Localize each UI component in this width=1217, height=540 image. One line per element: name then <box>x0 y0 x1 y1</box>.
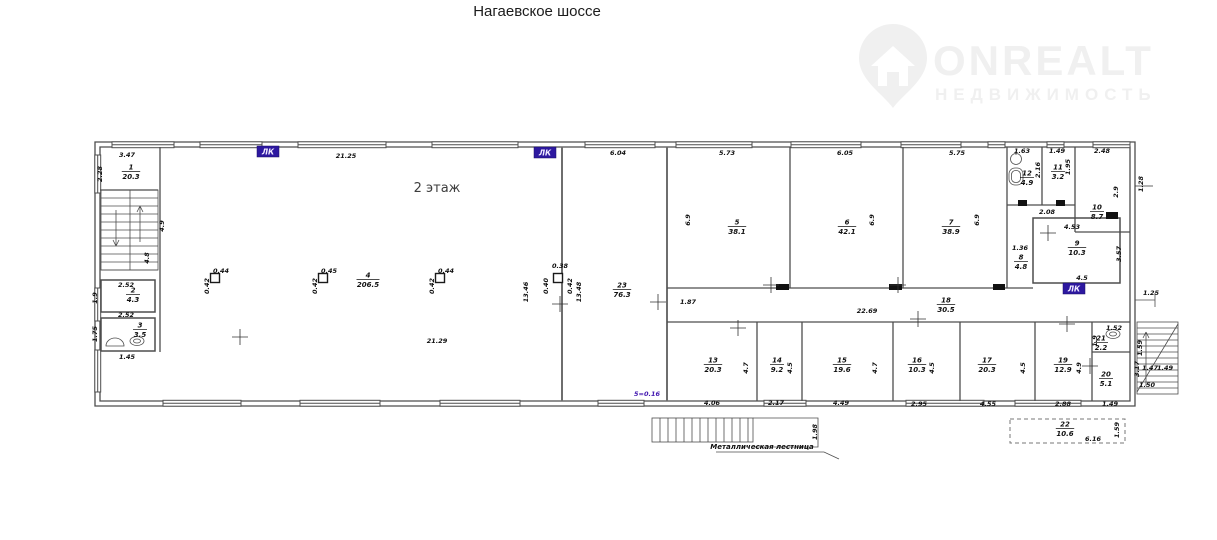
room-area: 4.9 <box>1021 179 1034 187</box>
room-label-15: 1519.6 <box>833 357 851 375</box>
room-number: 17 <box>982 357 992 365</box>
level-note: 5=0.16 <box>634 390 660 398</box>
room-label-7: 738.9 <box>942 219 960 237</box>
cross-ticks <box>232 186 1153 374</box>
room-label-22: 2210.6 <box>1056 421 1074 439</box>
room-label-6: 642.1 <box>838 219 856 237</box>
room-label-10: 108.7 <box>1090 204 1104 222</box>
dimension-label: 6.16 <box>1085 435 1102 443</box>
room-number: 11 <box>1053 164 1063 172</box>
room-area: 9.2 <box>771 366 784 374</box>
dimension-label: 1.45 <box>119 353 136 361</box>
dimension-label: 1.59 <box>1113 422 1121 439</box>
room-area: 4.3 <box>127 296 140 304</box>
dimension-label: 1.63 <box>1014 147 1031 155</box>
dimension-label: 21.29 <box>427 337 448 345</box>
dimension-label: 2.28 <box>96 166 104 183</box>
room-area: 20.3 <box>978 366 995 374</box>
room-label-17: 1720.3 <box>978 357 996 375</box>
toilet-icon <box>1110 332 1117 336</box>
fixtures <box>106 151 1120 346</box>
room-label-11: 113.2 <box>1051 164 1065 182</box>
dimension-label: 2.17 <box>768 399 785 407</box>
dimension-label: 1.28 <box>1137 176 1145 193</box>
dimension-label: 1.9 <box>91 292 99 304</box>
dimension-label: 2.52 <box>118 281 135 289</box>
dimension-label: 4.9 <box>158 220 166 232</box>
room-number: 1 <box>129 164 134 172</box>
room-label-5: 538.1 <box>728 219 746 237</box>
room-area: 10.3 <box>1068 249 1085 257</box>
dimension-label: 2.88 <box>1055 400 1072 408</box>
dimension-label: 4.9 <box>1075 362 1083 374</box>
dimension-label: 4.06 <box>704 399 721 407</box>
dimension-label: 0.44 <box>213 267 230 275</box>
room-number: 9 <box>1075 240 1080 248</box>
room-label-2: 24.3 <box>126 287 140 305</box>
room-label-16: 1610.3 <box>908 357 926 375</box>
floor-label: 2 этаж <box>414 181 461 196</box>
columns <box>211 274 563 283</box>
dimension-label: 3.17 <box>1133 361 1141 378</box>
lk-marker: ЛК <box>257 146 279 157</box>
dimension-label: 4.5 <box>1076 274 1088 282</box>
room-number: 6 <box>845 219 850 227</box>
dimension-label: 3.57 <box>1115 246 1123 263</box>
room-area: 38.9 <box>942 228 959 236</box>
dimension-label: 0.42 <box>311 278 319 295</box>
dimension-label: 1.95 <box>1064 159 1072 176</box>
dimension-label: 6.9 <box>868 214 876 226</box>
room-label-9: 910.3 <box>1068 240 1086 258</box>
dimension-label: 4.5 <box>1019 362 1027 374</box>
dimension-label: 2.16 <box>1034 162 1042 179</box>
room-area: 30.5 <box>937 306 954 314</box>
sink-icon <box>106 338 124 346</box>
room-label-14: 149.2 <box>770 357 784 375</box>
stair-up-arrow <box>137 206 143 242</box>
dimension-label: 5.73 <box>719 149 736 157</box>
room-area: 8.7 <box>1091 213 1104 221</box>
dimension-label: 1.49 <box>1157 364 1174 372</box>
room-label-1: 120.3 <box>122 164 140 182</box>
dimension-label: 0.44 <box>438 267 455 275</box>
room-area: 10.6 <box>1056 430 1073 438</box>
sink-icon <box>1011 154 1022 165</box>
room-area: 76.3 <box>613 291 630 299</box>
dimension-label: 1.98 <box>811 424 819 441</box>
stair-down-arrow <box>113 210 119 246</box>
room-number: 15 <box>837 357 847 365</box>
lk-marker-label: ЛК <box>1067 285 1081 294</box>
dimension-label: 4.8 <box>143 252 151 264</box>
lk-marker: ЛК <box>1063 283 1085 294</box>
room-label-8: 84.8 <box>1014 254 1028 272</box>
room-area: 4.8 <box>1015 263 1028 271</box>
dimension-label: 4.5 <box>786 362 794 374</box>
dimension-label: 1.52 <box>1106 324 1123 332</box>
room-number: 4 <box>366 272 371 280</box>
room-number: 12 <box>1022 170 1032 178</box>
dimension-label: 1.49 <box>1049 147 1066 155</box>
room-area: 3.5 <box>134 331 147 339</box>
dimension-label: 6.05 <box>837 149 854 157</box>
dimension-label: 13.46 <box>522 281 530 302</box>
room-number: 10 <box>1092 204 1102 212</box>
room-labels: 120.324.333.54206.5538.1642.1738.984.891… <box>122 164 1113 439</box>
dimension-label: 6.9 <box>684 214 692 226</box>
dimension-label: 0.42 <box>428 278 436 295</box>
room-number: 19 <box>1058 357 1068 365</box>
room-area: 19.6 <box>833 366 850 374</box>
dimension-label: 13.48 <box>575 281 583 302</box>
lk-marker-label: ЛК <box>261 148 275 157</box>
room-area: 3.2 <box>1052 173 1065 181</box>
dimension-label: 4.49 <box>833 399 850 407</box>
room-label-19: 1912.9 <box>1054 357 1072 375</box>
dimension-label: 1.36 <box>1012 244 1029 252</box>
dimension-label: 0.42 <box>566 278 574 295</box>
toilet-icon <box>134 339 141 343</box>
dimension-label: 5.75 <box>949 149 966 157</box>
dim-labels: 3.4721.256.045.736.055.751.631.492.482.2… <box>91 147 1173 443</box>
dimension-label: 4.55 <box>980 400 997 408</box>
floor-plan: Металлическая лестница <box>0 0 1217 540</box>
dimension-label: 6.04 <box>610 149 627 157</box>
dimension-label: 0.42 <box>203 278 211 295</box>
room-area: 20.3 <box>704 366 721 374</box>
dimension-label: 4.53 <box>1064 223 1081 231</box>
dimension-label: 22.69 <box>857 307 878 315</box>
metal-stair-label: Металлическая лестница <box>710 443 814 451</box>
room-number: 7 <box>949 219 954 227</box>
room-label-18: 1830.5 <box>937 297 955 315</box>
room-area: 38.1 <box>728 228 745 236</box>
dimension-label: 2.95 <box>911 400 928 408</box>
room-number: 8 <box>1019 254 1024 262</box>
windows-bottom <box>163 400 1081 406</box>
room-label-13: 1320.3 <box>704 357 722 375</box>
room-number: 22 <box>1060 421 1070 429</box>
dimension-label: 2.52 <box>118 311 135 319</box>
room-area: 42.1 <box>838 228 855 236</box>
dimension-label: 6.9 <box>973 214 981 226</box>
dimension-label: 1.49 <box>1102 400 1119 408</box>
canvas: Нагаевское шоссе ONREALT НЕДВИЖИМОСТЬ <box>0 0 1217 540</box>
dimension-label: 4.7 <box>742 362 750 374</box>
dimension-label: 1.9 <box>1091 335 1099 347</box>
dimension-label: 1.59 <box>1136 340 1144 357</box>
dimension-label: 2.08 <box>1039 208 1056 216</box>
room-number: 23 <box>617 282 627 290</box>
room-number: 16 <box>912 357 922 365</box>
lk-marker: ЛК <box>534 147 556 158</box>
dimension-label: 4.5 <box>928 362 936 374</box>
room-label-23: 2376.3 <box>613 282 631 300</box>
dimension-label: 1.87 <box>680 298 697 306</box>
room-number: 18 <box>941 297 951 305</box>
lk-markers: ЛКЛКЛК <box>257 146 1085 294</box>
bath-icon <box>1012 171 1021 183</box>
dimension-label: 1.50 <box>1139 381 1156 389</box>
room-label-12: 124.9 <box>1020 170 1034 188</box>
dimension-label: 1.25 <box>1143 289 1160 297</box>
lk-marker-label: ЛК <box>538 149 552 158</box>
room-number: 5 <box>735 219 740 227</box>
room-area: 20.3 <box>122 173 139 181</box>
room-area: 12.9 <box>1054 366 1071 374</box>
dimension-label: 1.75 <box>91 326 99 343</box>
interior-walls <box>100 147 1130 401</box>
dimension-label: 2.9 <box>1112 186 1120 198</box>
dimension-label: 4.7 <box>871 362 879 374</box>
dimension-label: 3.47 <box>119 151 136 159</box>
room-number: 13 <box>708 357 718 365</box>
room-number: 20 <box>1101 371 1111 379</box>
room-label-20: 205.1 <box>1099 371 1113 389</box>
room-area: 10.3 <box>908 366 925 374</box>
dimension-label: 0.38 <box>552 262 569 270</box>
dimension-label: 2.48 <box>1094 147 1111 155</box>
room-area: 206.5 <box>357 281 379 289</box>
room-label-4: 4206.5 <box>357 272 380 290</box>
room-number: 3 <box>138 322 143 330</box>
dimension-label: 21.25 <box>336 152 357 160</box>
doors <box>776 200 1118 290</box>
dimension-label: 0.45 <box>321 267 338 275</box>
room-number: 14 <box>772 357 782 365</box>
room-label-3: 33.5 <box>133 322 147 340</box>
room-area: 5.1 <box>1100 380 1113 388</box>
dimension-label: 0.40 <box>542 278 550 295</box>
